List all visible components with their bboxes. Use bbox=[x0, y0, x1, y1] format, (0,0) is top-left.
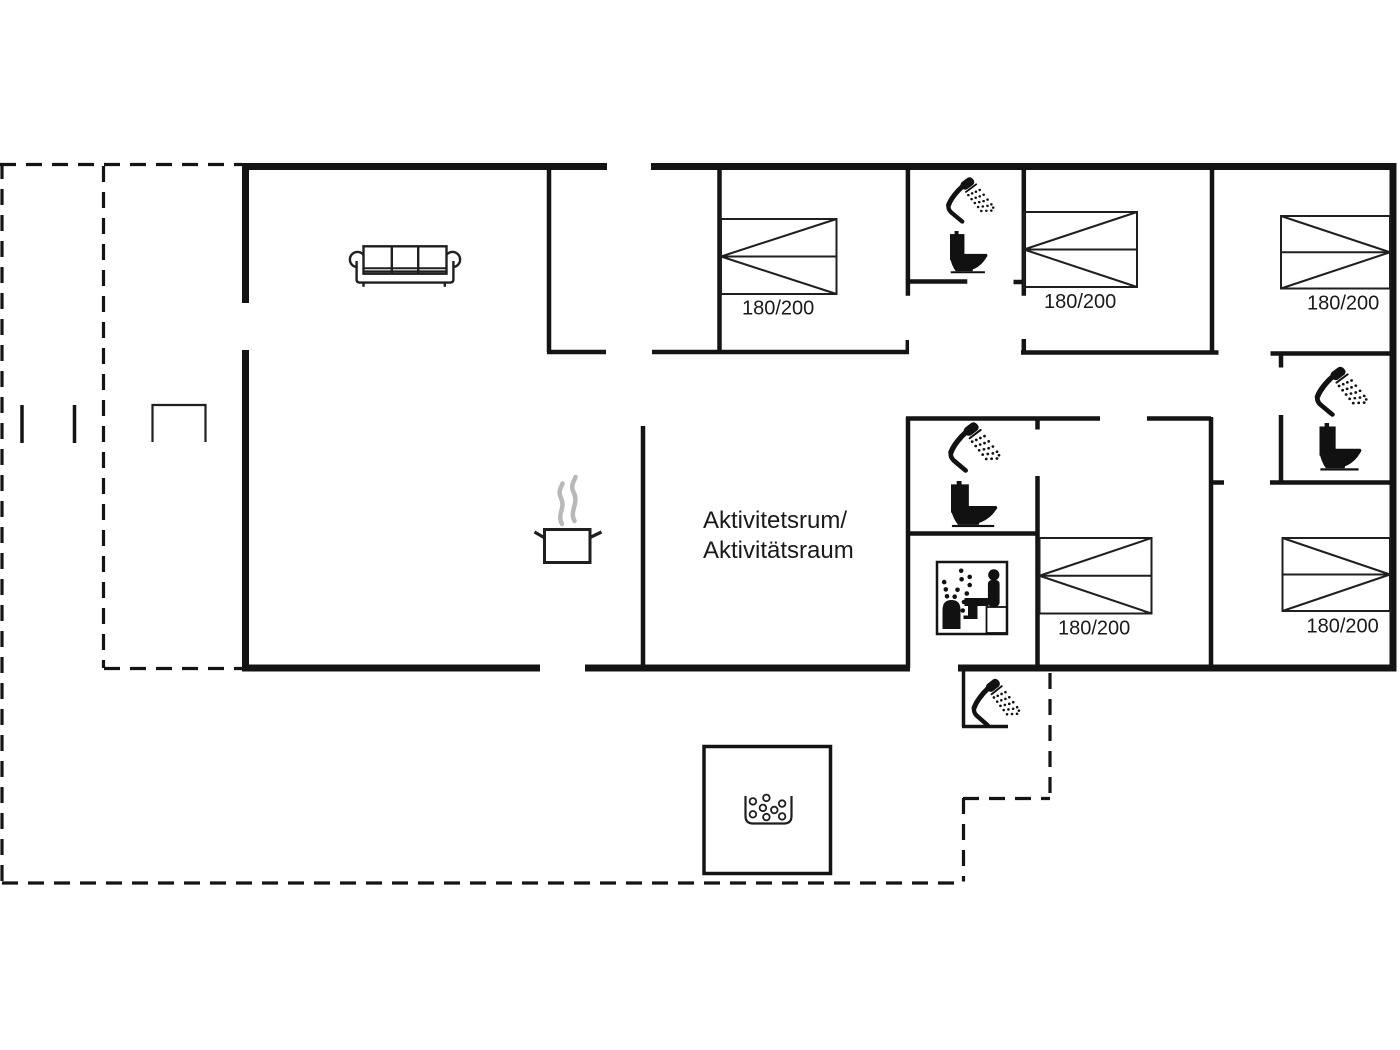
svg-text:180/200: 180/200 bbox=[1307, 616, 1379, 638]
svg-text:Aktivitätsraum: Aktivitätsraum bbox=[703, 537, 854, 564]
svg-text:180/200: 180/200 bbox=[1307, 293, 1379, 315]
svg-text:180/200: 180/200 bbox=[742, 298, 814, 320]
svg-text:180/200: 180/200 bbox=[1044, 291, 1116, 313]
svg-text:180/200: 180/200 bbox=[1058, 618, 1130, 640]
svg-text:Aktivitetsrum/: Aktivitetsrum/ bbox=[703, 507, 847, 534]
